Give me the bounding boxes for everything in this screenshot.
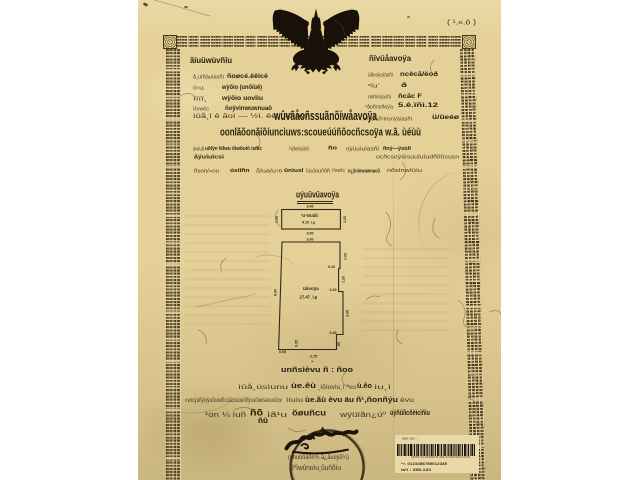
- svg-text:.55: .55: [337, 342, 341, 347]
- svg-text:µ.: µ.: [312, 359, 315, 363]
- svg-text:0.25: 0.25: [295, 340, 299, 347]
- svg-text:1.00: 1.00: [344, 253, 348, 260]
- svg-text:8.00: 8.00: [274, 289, 278, 296]
- svg-text:27.47 ¸ì.µ: 27.47 ¸ì.µ: [300, 295, 318, 300]
- svg-text:ºuªsïuûß: ºuªsïuûß: [301, 213, 318, 218]
- svg-text:4.10 ¸ì.µ: 4.10 ¸ì.µ: [302, 221, 315, 225]
- svg-text:3.00: 3.00: [307, 232, 314, 236]
- svg-text:3.65: 3.65: [346, 310, 350, 317]
- svg-text:1.20: 1.20: [343, 216, 347, 223]
- svg-text:0.20: 0.20: [330, 288, 337, 292]
- svg-text:1.00: 1.00: [275, 216, 279, 223]
- svg-text:3.00: 3.00: [307, 238, 314, 242]
- svg-text:0.10: 0.10: [328, 265, 335, 269]
- svg-text:1.20: 1.20: [342, 276, 346, 283]
- svg-text:3.00: 3.00: [307, 204, 314, 208]
- svg-text:0.40: 0.40: [330, 331, 337, 335]
- svg-text:üåvoÿa: üåvoÿa: [303, 285, 319, 291]
- svg-text:0.05: 0.05: [279, 350, 286, 354]
